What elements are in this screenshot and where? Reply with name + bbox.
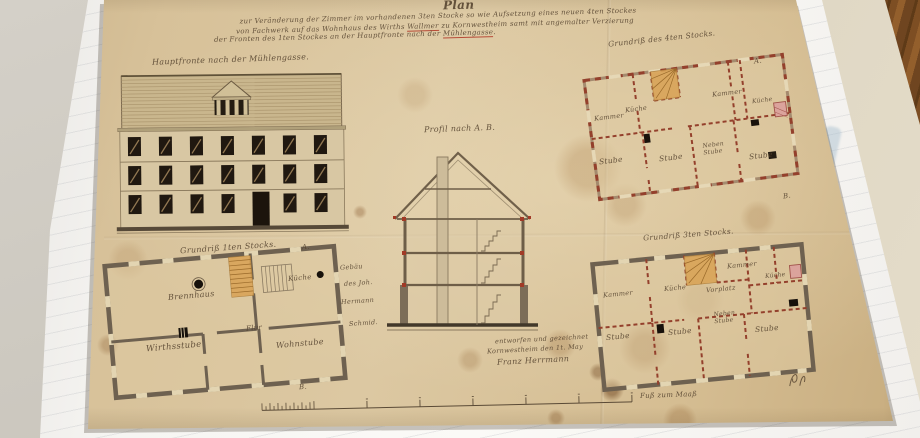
margin-note-line-3: Hermann [341, 296, 375, 306]
facade-elevation-drawing [115, 65, 349, 237]
scale-tick-caps [366, 393, 633, 399]
right-foundation [520, 285, 528, 325]
window [221, 165, 234, 184]
section-marker-a: A. [302, 243, 310, 252]
margin-note-line-2: des Joh. [344, 278, 373, 288]
stove-icon [789, 299, 799, 307]
window [283, 135, 296, 154]
window [128, 166, 141, 185]
window [159, 195, 172, 214]
left-foundation [400, 285, 408, 325]
window [159, 166, 172, 185]
window [252, 165, 265, 184]
scale-minor-ticks [262, 401, 314, 410]
window [314, 135, 327, 154]
window [314, 193, 327, 212]
entrance-door [252, 192, 269, 226]
chimney-stack [789, 264, 801, 278]
plan-floor3-drawing [588, 240, 818, 394]
section-interior [406, 219, 522, 325]
window [159, 137, 172, 156]
dormer-column [243, 100, 247, 115]
scale-line [262, 402, 632, 410]
plan-interior [105, 246, 346, 398]
corner-flourish [785, 369, 810, 392]
plan-floor3-caption: Grundriß 3ten Stocks. [643, 226, 734, 242]
plan-floor4-caption: Grundriß des 4ten Stocks. [608, 28, 716, 48]
plan-floor1-drawing [100, 242, 349, 402]
title-line-3-underlined: Mühlengasse [443, 28, 494, 38]
stove-icon [657, 324, 665, 334]
roof-rafters [395, 153, 530, 219]
window [252, 136, 265, 155]
section-caption: Profil nach A. B. [424, 123, 495, 134]
stove-icon [644, 133, 651, 143]
margin-note-line-1: Gebäu [340, 262, 363, 272]
room-label-flur: Flur [246, 323, 263, 332]
scale-bar [260, 390, 645, 419]
window [221, 194, 234, 213]
window [283, 193, 296, 212]
room-label-neben-stube: Neben Stube [713, 310, 740, 326]
stove-icon [751, 119, 760, 126]
cross-section-drawing [385, 145, 540, 340]
plan-floor4-drawing [578, 49, 803, 205]
signature-name: Franz Herrmann [497, 354, 570, 367]
dormer-entablature [212, 97, 250, 100]
margin-note-line-4: Schmid. [349, 318, 378, 328]
window [190, 136, 203, 155]
window [128, 195, 141, 214]
chimney-flue [437, 157, 448, 325]
ground-line [117, 231, 349, 233]
title-line-3-post: . [493, 28, 496, 36]
window [190, 194, 203, 213]
section-marker-a: A. [754, 57, 763, 66]
section-marker-b: B. [783, 192, 792, 201]
dormer-column [216, 100, 220, 115]
section-marker-b: B. [299, 383, 308, 392]
window [128, 137, 141, 156]
dormer-column [234, 100, 238, 115]
photograph-of-architectural-plan: { "colors": { "paper": "#d6c099", "ink":… [0, 0, 920, 438]
scale-major-ticks [367, 395, 632, 408]
stove-icon [178, 327, 188, 338]
dormer-column [225, 100, 229, 115]
scale-bar-label: Fuß zum Maaß [640, 390, 697, 400]
window [190, 165, 203, 184]
window [283, 164, 296, 183]
window [314, 164, 327, 183]
window [221, 136, 234, 155]
plan-sheet: Plan zur Veränderung der Zimmer im vorha… [0, 0, 920, 438]
